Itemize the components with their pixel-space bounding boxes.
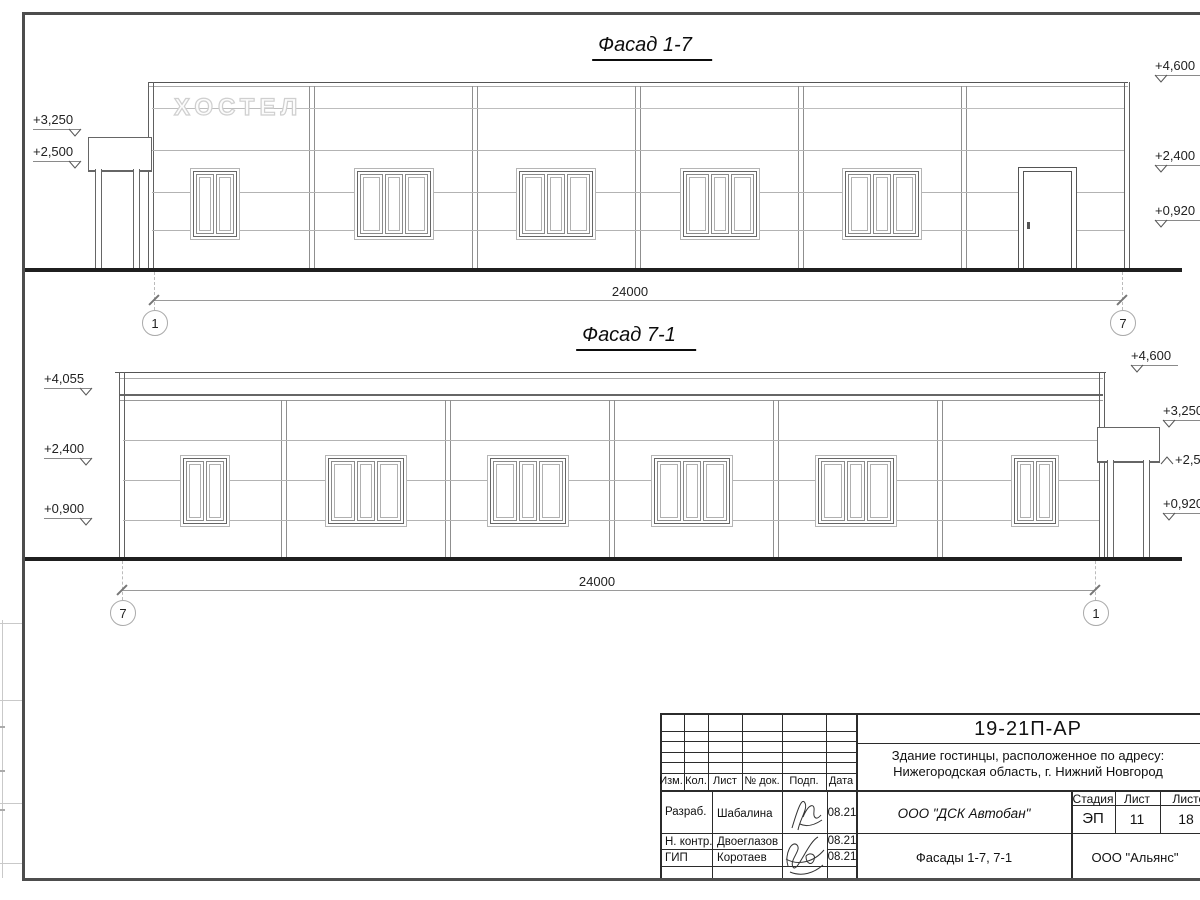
titleblock-line <box>660 713 662 878</box>
dimension-value: 24000 <box>612 284 648 299</box>
siding-line <box>152 192 1124 193</box>
window <box>1011 455 1059 527</box>
elevation-value: +2,500 <box>33 144 80 159</box>
elevation-arrow-icon <box>79 387 93 396</box>
window <box>354 168 434 240</box>
window-pane <box>519 461 538 521</box>
elevation-arrow-icon <box>1162 419 1176 428</box>
titleblock-role: ГИП <box>665 852 688 864</box>
canopy-post <box>133 169 140 268</box>
window-pane <box>539 461 563 521</box>
window-pane <box>405 174 428 234</box>
titleblock-stage-label: Стадия <box>1073 792 1114 806</box>
window-pane <box>1036 461 1053 521</box>
elevation-arrow-icon <box>79 517 93 526</box>
window <box>516 168 596 240</box>
titleblock-project-line2: Нижегородская область, г. Нижний Новгоро… <box>893 764 1163 779</box>
bay-divider <box>281 400 287 557</box>
window-frame <box>519 171 593 237</box>
facade-corner <box>1099 372 1105 557</box>
titleblock-sheets-label: Листов <box>1173 792 1200 806</box>
axis-extension-line <box>1095 561 1096 600</box>
titleblock-doc-code: 19-21П-АР <box>974 718 1082 741</box>
siding-line <box>123 480 1099 481</box>
window <box>651 455 733 527</box>
elevation-value: +2,400 <box>1155 148 1200 163</box>
elevation-arrow-icon <box>68 128 82 137</box>
titleblock-line <box>660 752 857 753</box>
titleblock-company: ООО "ДСК Автобан" <box>898 806 1031 821</box>
window <box>487 455 569 527</box>
axis-bubble: 1 <box>1083 600 1109 626</box>
elevation-value: +4,600 <box>1131 348 1178 363</box>
elevation-value: +2,400 <box>44 441 91 456</box>
titleblock-date: 08.21 <box>828 807 857 819</box>
titleblock-name: Двоеглазов <box>717 836 778 848</box>
elevation-mark: +0,920 <box>1163 496 1200 514</box>
window-frame <box>357 171 431 237</box>
bay-divider <box>609 400 615 557</box>
titleblock-col-podp: Подп. <box>789 775 818 787</box>
axis-extension-line <box>122 561 123 600</box>
facade-corner <box>1124 82 1130 268</box>
elevation-arrow-icon <box>1154 164 1168 173</box>
titleblock-stage-value: ЭП <box>1082 810 1104 827</box>
titleblock-line <box>857 743 1200 744</box>
elevation-arrow-icon <box>1130 364 1144 373</box>
window-frame <box>845 171 919 237</box>
window-pane <box>331 461 355 521</box>
titleblock-contractor: ООО "Альянс" <box>1092 850 1179 865</box>
fascia-line <box>119 394 1103 396</box>
window <box>180 455 230 527</box>
elevation-arrow-icon <box>1154 74 1168 83</box>
axis-bubble: 7 <box>110 600 136 626</box>
window-pane <box>547 174 565 234</box>
elevation-arrow-icon <box>79 457 93 466</box>
facade-corner <box>119 372 125 557</box>
elevation-mark: +4,600 <box>1155 58 1200 76</box>
window-pane <box>848 174 871 234</box>
window-pane <box>683 461 702 521</box>
titleblock-line <box>827 849 857 850</box>
margin-line <box>0 700 22 701</box>
elevation-value: +0,900 <box>44 501 91 516</box>
titleblock-line <box>660 713 1200 715</box>
elevation-value: +0,920 <box>1155 203 1200 218</box>
window <box>325 455 407 527</box>
window-pane <box>711 174 729 234</box>
window-frame <box>683 171 757 237</box>
titleblock-line <box>660 762 857 763</box>
dimension-line <box>154 300 1122 301</box>
margin-text-fragment <box>0 770 5 772</box>
titleblock-line <box>660 849 782 850</box>
titleblock-col-list: Лист <box>713 775 737 787</box>
titleblock-role: Разраб. <box>665 806 706 818</box>
bay-divider <box>961 86 967 268</box>
siding-line <box>152 230 1124 231</box>
margin-line <box>0 623 22 624</box>
facade-top-line <box>119 378 1103 379</box>
window-pane <box>357 461 376 521</box>
bay-divider <box>937 400 943 557</box>
elevation-value: +4,055 <box>44 371 91 386</box>
titleblock-sheets-value: 18 <box>1178 811 1194 827</box>
titleblock-col-izm: Изм. <box>659 775 683 787</box>
window-pane <box>493 461 517 521</box>
elevation-value: +0,920 <box>1163 496 1200 511</box>
signature <box>780 832 828 876</box>
window-pane <box>847 461 866 521</box>
axis-extension-line <box>154 272 155 310</box>
entrance-door <box>1018 167 1077 270</box>
titleblock-name: Шабалина <box>717 808 773 820</box>
margin-line <box>2 620 3 878</box>
margin-text-fragment <box>0 809 5 811</box>
titleblock-date: 08.21 <box>828 835 857 847</box>
window-pane <box>196 174 214 234</box>
window-pane <box>893 174 916 234</box>
window-frame <box>328 458 404 524</box>
elevation-mark: +4,600 <box>1131 348 1178 366</box>
drawing-sheet: { "sheet": { "facade1": { "title": "Фаса… <box>0 0 1200 900</box>
canopy-post <box>95 169 102 268</box>
facade2-title: Фасад 7-1 <box>576 324 696 351</box>
elevation-mark: +2,400 <box>44 441 91 459</box>
window-pane <box>567 174 590 234</box>
elevation-mark: +4,055 <box>44 371 91 389</box>
window-frame <box>1014 458 1056 524</box>
titleblock-sheet-label: Лист <box>1124 792 1150 806</box>
window-frame <box>654 458 730 524</box>
margin-text-fragment <box>0 726 5 728</box>
elevation-mark: +3,250 <box>33 112 80 130</box>
window <box>190 168 240 240</box>
margin-line <box>0 863 22 864</box>
elevation-mark: +3,250 <box>1163 403 1200 421</box>
frame-bottom-line <box>22 878 1200 881</box>
titleblock-line <box>660 731 857 732</box>
canopy-post <box>1107 460 1114 557</box>
elevation-mark: +0,900 <box>44 501 91 519</box>
axis-extension-line <box>1122 272 1123 310</box>
bay-divider <box>635 86 641 268</box>
frame-left-line <box>22 12 25 881</box>
elevation-mark: +2,500 <box>33 144 80 162</box>
titleblock-project-line1: Здание гостинцы, расположенное по адресу… <box>892 748 1164 763</box>
window-pane <box>686 174 709 234</box>
siding-line <box>123 440 1099 441</box>
ground-line <box>25 557 1182 561</box>
window-frame <box>818 458 894 524</box>
titleblock-line <box>1160 790 1161 833</box>
siding-line <box>152 150 1124 151</box>
bay-divider <box>472 86 478 268</box>
titleblock-role: Н. контр. <box>665 836 712 848</box>
axis-bubble: 1 <box>142 310 168 336</box>
elevation-value: +3,250 <box>33 112 80 127</box>
elevation-value: +4,600 <box>1155 58 1200 73</box>
dimension-value: 24000 <box>579 574 615 589</box>
margin-line <box>0 803 22 804</box>
door-handle <box>1027 222 1030 229</box>
titleblock-col-data: Дата <box>829 775 853 787</box>
titleblock-date: 08.21 <box>828 851 857 863</box>
elevation-arrow-icon <box>68 160 82 169</box>
bay-divider <box>798 86 804 268</box>
canopy <box>88 137 152 172</box>
titleblock-line <box>660 790 1200 792</box>
window-pane <box>360 174 383 234</box>
titleblock-line <box>660 773 857 774</box>
titleblock-name: Коротаев <box>717 852 767 864</box>
axis-bubble: 7 <box>1110 310 1136 336</box>
titleblock-line <box>712 790 713 878</box>
window-pane <box>731 174 754 234</box>
signature <box>786 794 824 834</box>
frame-top-line <box>22 12 1200 15</box>
window-frame <box>193 171 237 237</box>
window-pane <box>821 461 845 521</box>
elevation-value: +2,500 <box>1175 452 1200 467</box>
window-pane <box>385 174 403 234</box>
window-frame <box>183 458 227 524</box>
window-pane <box>703 461 727 521</box>
facade-top-line <box>148 82 1128 83</box>
titleblock-line <box>660 833 1200 834</box>
facade1-title: Фасад 1-7 <box>592 34 712 61</box>
dimension-line <box>122 590 1095 591</box>
titleblock-col-doc: № док. <box>744 775 779 787</box>
window <box>680 168 760 240</box>
bay-divider <box>445 400 451 557</box>
siding-line <box>123 520 1099 521</box>
window-frame <box>490 458 566 524</box>
window-pane <box>522 174 545 234</box>
facade-corner <box>148 82 154 268</box>
elevation-arrow-icon <box>1160 456 1174 465</box>
elevation-mark: +2,400 <box>1155 148 1200 166</box>
titleblock-line <box>1115 790 1116 833</box>
window-pane <box>873 174 891 234</box>
elevation-mark: +2,500 <box>1160 452 1200 467</box>
facade-top-line <box>115 372 1106 373</box>
window-pane <box>186 461 204 521</box>
elevation-value: +3,250 <box>1163 403 1200 418</box>
window-pane <box>1017 461 1034 521</box>
canopy-post <box>1143 460 1150 557</box>
elevation-arrow-icon <box>1162 512 1176 521</box>
bay-divider <box>773 400 779 557</box>
window-pane <box>657 461 681 521</box>
elevation-arrow-icon <box>1154 219 1168 228</box>
window-pane <box>867 461 891 521</box>
canopy <box>1097 427 1160 463</box>
door-leaf <box>1023 171 1072 269</box>
elevation-mark: +0,920 <box>1155 203 1200 221</box>
window <box>815 455 897 527</box>
titleblock-line <box>660 741 857 742</box>
hostel-sign: ХОСТЕЛ <box>174 94 302 122</box>
bay-divider <box>309 86 315 268</box>
titleblock-sheet-value: 11 <box>1130 811 1145 827</box>
titleblock-col-kol: Кол. <box>685 775 707 787</box>
window <box>842 168 922 240</box>
titleblock-subtitle: Фасады 1-7, 7-1 <box>916 850 1012 865</box>
window-pane <box>216 174 234 234</box>
window-pane <box>377 461 401 521</box>
ground-line <box>25 268 1182 272</box>
window-pane <box>206 461 224 521</box>
